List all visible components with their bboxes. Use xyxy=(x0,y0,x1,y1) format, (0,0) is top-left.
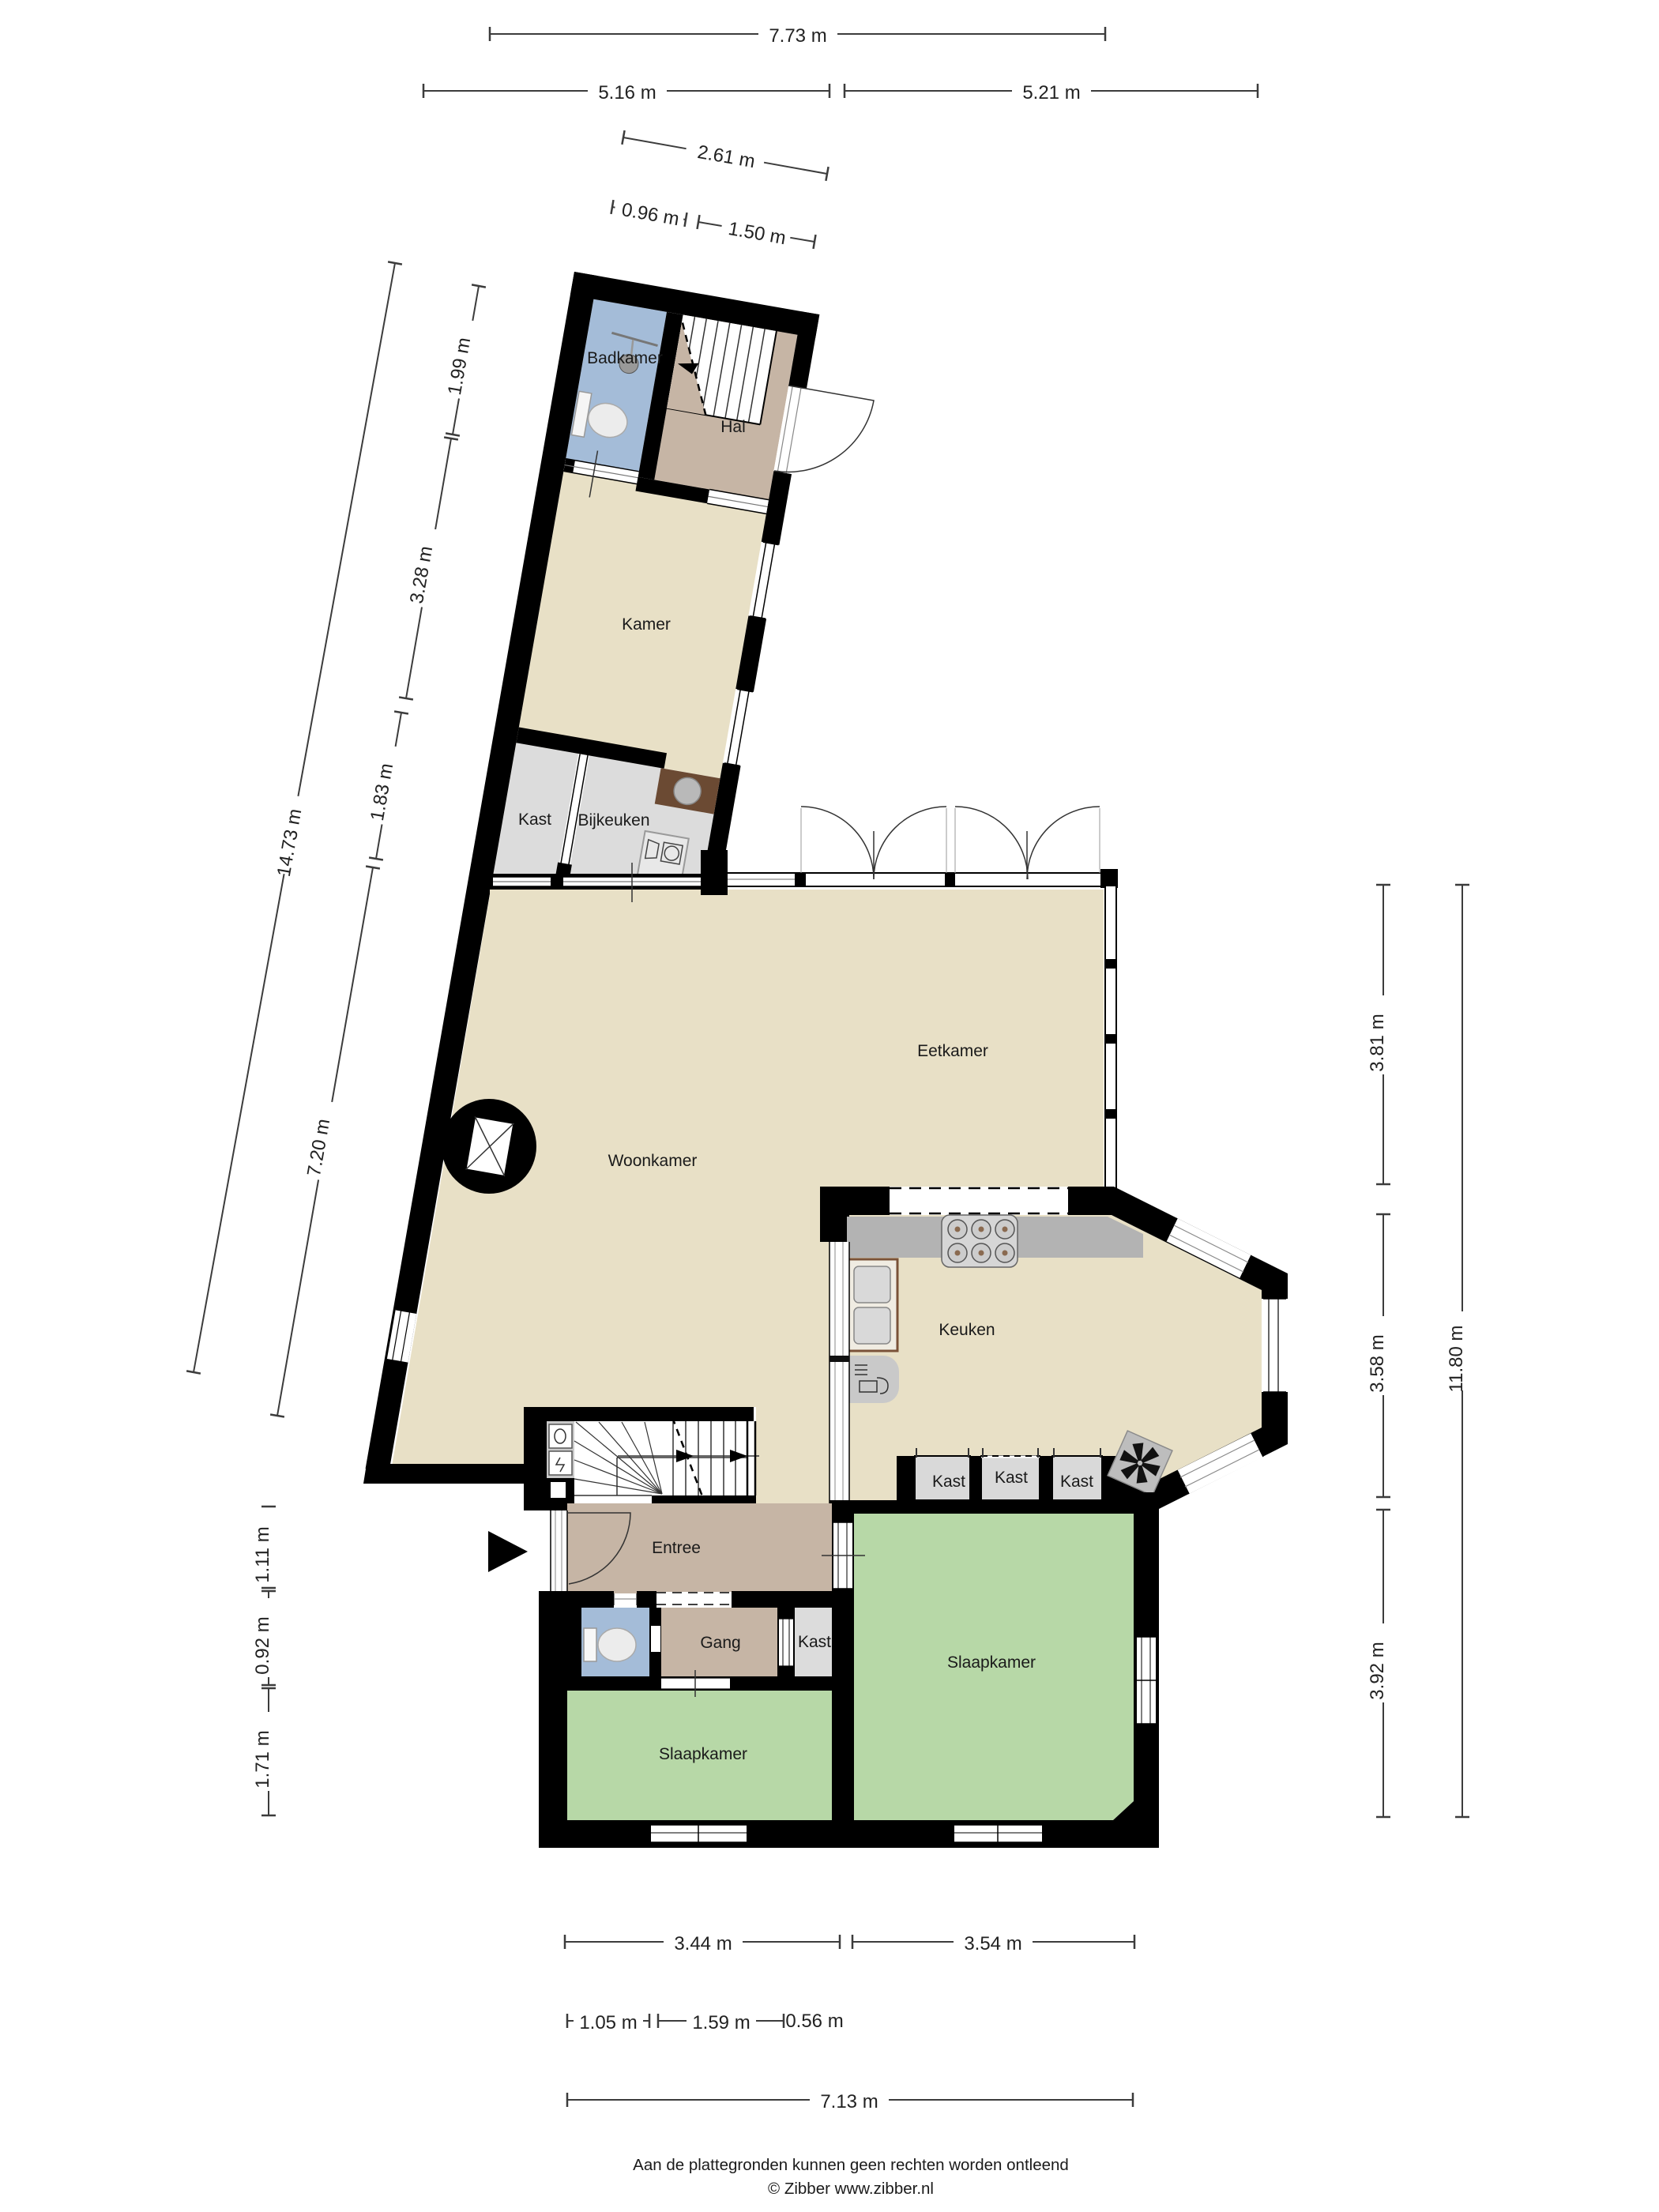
svg-text:5.16 m: 5.16 m xyxy=(598,82,656,103)
svg-text:Kast: Kast xyxy=(798,1633,831,1651)
svg-text:3.92 m: 3.92 m xyxy=(1367,1642,1388,1699)
svg-text:5.21 m: 5.21 m xyxy=(1022,82,1080,103)
svg-text:Kamer: Kamer xyxy=(622,615,671,634)
svg-text:Gang: Gang xyxy=(700,1634,740,1652)
svg-text:3.44 m: 3.44 m xyxy=(674,1933,732,1954)
svg-text:Aan de plattegronden kunnen ge: Aan de plattegronden kunnen geen rechten… xyxy=(633,2156,1069,2174)
svg-text:3.81 m: 3.81 m xyxy=(1367,1014,1388,1071)
svg-text:1.05 m: 1.05 m xyxy=(579,2012,637,2033)
svg-text:Kast: Kast xyxy=(1060,1473,1093,1491)
svg-text:Eetkamer: Eetkamer xyxy=(917,1042,988,1060)
svg-text:Hal: Hal xyxy=(720,418,746,436)
svg-text:Kast: Kast xyxy=(995,1469,1028,1487)
svg-text:Kast: Kast xyxy=(518,811,551,829)
svg-text:Slaapkamer: Slaapkamer xyxy=(659,1745,747,1763)
svg-text:Kast: Kast xyxy=(932,1473,965,1491)
svg-text:Bijkeuken: Bijkeuken xyxy=(577,811,649,829)
svg-text:1.71 m: 1.71 m xyxy=(252,1730,273,1788)
svg-text:3.54 m: 3.54 m xyxy=(964,1933,1021,1954)
svg-text:Slaapkamer: Slaapkamer xyxy=(947,1653,1036,1672)
svg-text:1.59 m: 1.59 m xyxy=(692,2012,750,2033)
svg-text:Woonkamer: Woonkamer xyxy=(608,1152,698,1170)
svg-text:7.13 m: 7.13 m xyxy=(820,2091,878,2112)
svg-text:© Zibber www.zibber.nl: © Zibber www.zibber.nl xyxy=(768,2180,934,2198)
svg-text:3.58 m: 3.58 m xyxy=(1367,1334,1388,1392)
svg-text:7.73 m: 7.73 m xyxy=(769,25,826,47)
svg-text:0.56 m: 0.56 m xyxy=(785,2011,843,2032)
svg-text:Entree: Entree xyxy=(652,1539,701,1557)
svg-text:Keuken: Keuken xyxy=(939,1321,995,1339)
svg-text:11.80 m: 11.80 m xyxy=(1446,1326,1467,1393)
svg-text:Badkamer: Badkamer xyxy=(587,349,663,367)
svg-text:1.11 m: 1.11 m xyxy=(252,1526,273,1583)
svg-text:0.92 m: 0.92 m xyxy=(252,1616,273,1674)
